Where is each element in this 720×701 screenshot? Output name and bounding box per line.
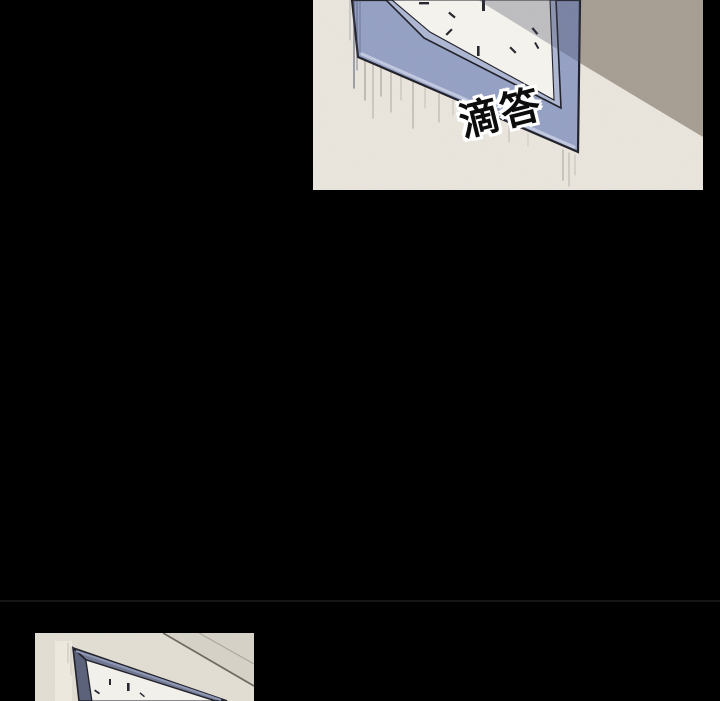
panel-seam-line [0,600,720,602]
panel-bottom-art [35,633,254,701]
comic-panel-clock-top[interactable]: 滴答 [313,0,703,190]
comic-page: 滴答 [0,0,720,701]
paper-grain [35,633,254,701]
comic-panel-clock-bottom[interactable] [35,633,254,701]
